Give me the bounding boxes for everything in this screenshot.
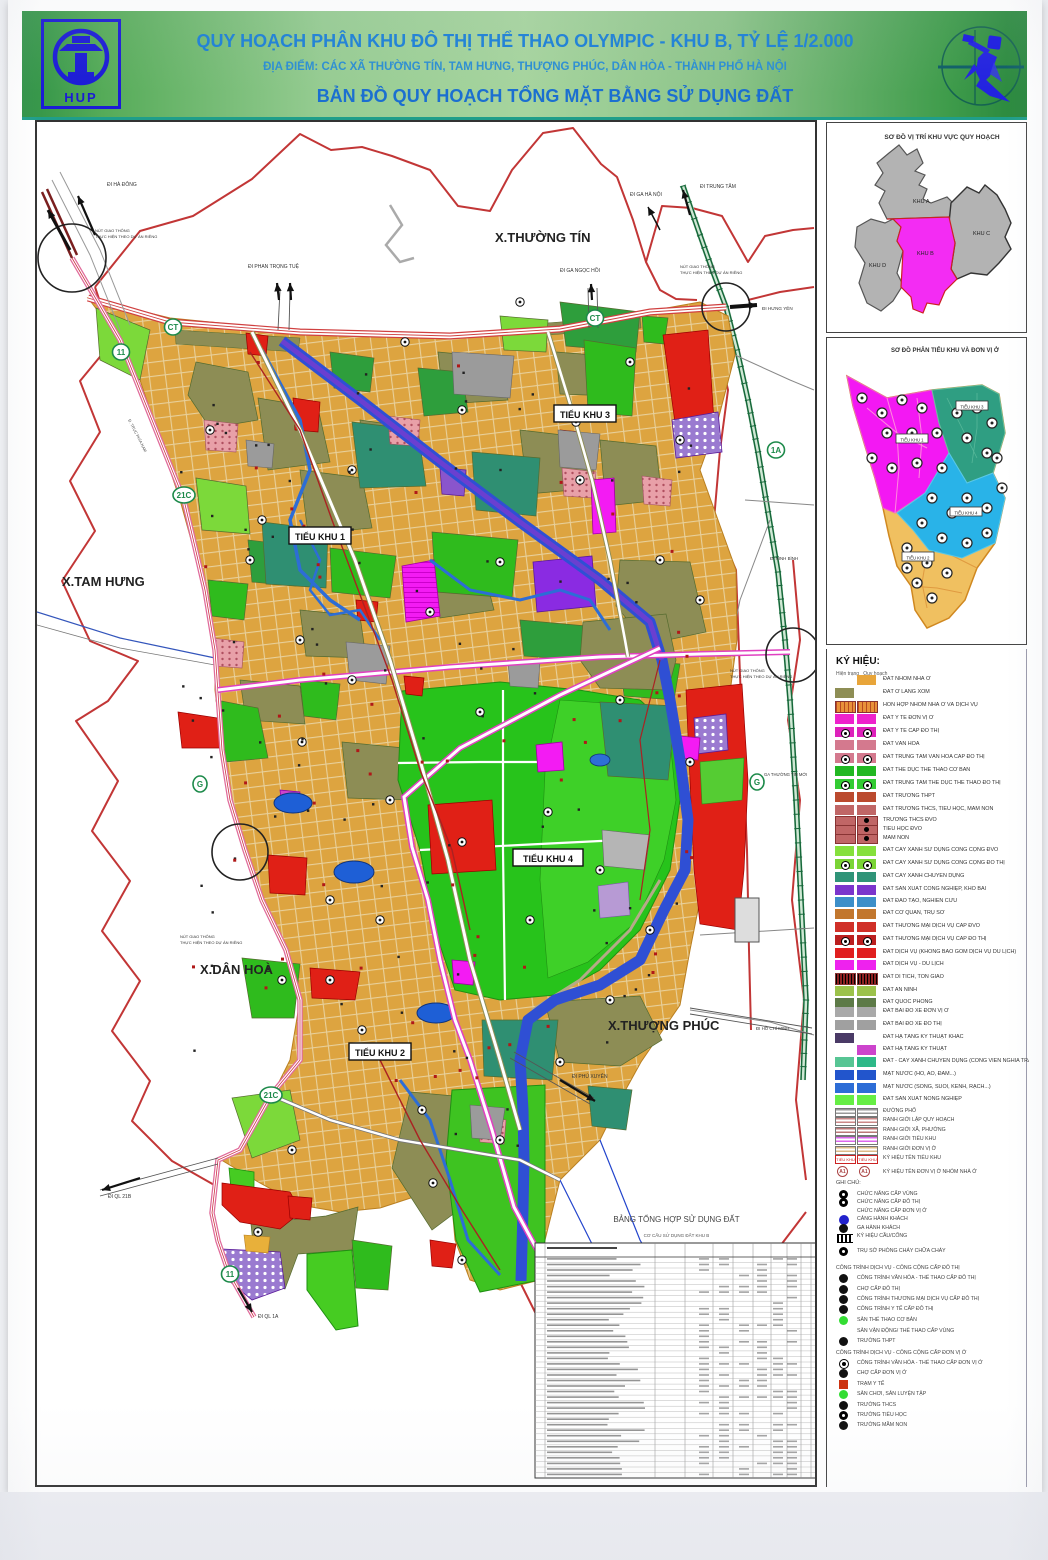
svg-text:G: G [197, 780, 203, 789]
svg-text:11: 11 [226, 1270, 235, 1279]
svg-text:G: G [754, 778, 760, 787]
svg-text:NÚT GIAO THÔNG: NÚT GIAO THÔNG [680, 264, 715, 269]
svg-text:KHU A: KHU A [913, 199, 930, 205]
svg-text:SƠ ĐỒ VỊ TRÍ KHU VỰC QUY HOẠCH: SƠ ĐỒ VỊ TRÍ KHU VỰC QUY HOẠCH [884, 131, 999, 141]
svg-text:TIỂU KHU 1: TIỂU KHU 1 [295, 531, 345, 542]
svg-text:ĐI QL 1A: ĐI QL 1A [258, 1314, 279, 1320]
svg-text:TIỂU KHU 3: TIỂU KHU 3 [960, 405, 984, 410]
svg-text:1A: 1A [771, 446, 781, 455]
svg-text:ĐI TRUNG TÂM: ĐI TRUNG TÂM [700, 183, 736, 190]
svg-text:ĐI PHÚ XUYÊN: ĐI PHÚ XUYÊN [572, 1072, 608, 1080]
svg-text:THỰC HIỆN THEO DỰ ÁN RIÊNG: THỰC HIỆN THEO DỰ ÁN RIÊNG [680, 270, 742, 275]
svg-text:ĐI HỒ CHÍ MINH: ĐI HỒ CHÍ MINH [756, 1026, 789, 1031]
svg-text:NÚT GIAO THÔNG: NÚT GIAO THÔNG [730, 668, 765, 673]
svg-text:GA THƯỜNG TÍN MỚI: GA THƯỜNG TÍN MỚI [764, 772, 807, 777]
svg-text:TIỂU KHU 2: TIỂU KHU 2 [355, 1047, 405, 1058]
svg-text:THỰC HIỆN THEO DỰ ÁN RIÊNG: THỰC HIỆN THEO DỰ ÁN RIÊNG [730, 674, 792, 679]
svg-text:KHU B: KHU B [917, 251, 934, 257]
svg-text:ĐI GA NGỌC HỒI: ĐI GA NGỌC HỒI [560, 267, 600, 274]
svg-text:TIỂU KHU 2: TIỂU KHU 2 [906, 556, 930, 561]
svg-text:NÚT GIAO THÔNG: NÚT GIAO THÔNG [180, 934, 215, 939]
svg-text:CT: CT [590, 314, 601, 323]
svg-text:KHU D: KHU D [869, 263, 886, 269]
svg-text:THỰC HIỆN THEO DỰ ÁN RIÊNG: THỰC HIỆN THEO DỰ ÁN RIÊNG [95, 234, 157, 239]
svg-text:TIỂU KHU 4: TIỂU KHU 4 [523, 853, 573, 864]
svg-text:21C: 21C [177, 491, 192, 500]
svg-text:ĐI HÀ ĐÔNG: ĐI HÀ ĐÔNG [107, 181, 137, 188]
svg-text:ĐI PHAN TRỌNG TUỆ: ĐI PHAN TRỌNG TUỆ [248, 262, 300, 270]
svg-text:11: 11 [117, 348, 126, 357]
svg-text:HUP: HUP [64, 90, 97, 105]
svg-text:ĐI HƯNG YÊN: ĐI HƯNG YÊN [762, 304, 793, 311]
svg-text:X.DÂN HOÀ: X.DÂN HOÀ [200, 962, 274, 977]
svg-text:21C: 21C [264, 1091, 279, 1100]
svg-text:ĐI GA HÀ NỘI: ĐI GA HÀ NỘI [630, 191, 662, 198]
svg-text:TIỂU KHU 1: TIỂU KHU 1 [900, 438, 924, 443]
svg-text:X.TAM HƯNG: X.TAM HƯNG [62, 574, 145, 589]
svg-text:ĐI QL 21B: ĐI QL 21B [108, 1194, 132, 1200]
svg-text:ĐI NINH BÌNH: ĐI NINH BÌNH [770, 556, 798, 561]
svg-text:SƠ ĐỒ PHÂN TIỂU KHU VÀ ĐƠN VỊ: SƠ ĐỒ PHÂN TIỂU KHU VÀ ĐƠN VỊ Ở [891, 347, 1000, 354]
svg-text:NÚT GIAO THÔNG: NÚT GIAO THÔNG [95, 228, 130, 233]
svg-text:X.THƯỜNG TÍN: X.THƯỜNG TÍN [495, 230, 591, 245]
svg-text:THỰC HIỆN THEO DỰ ÁN RIÊNG: THỰC HIỆN THEO DỰ ÁN RIÊNG [180, 940, 242, 945]
svg-text:CƠ CẤU SỬ DỤNG ĐẤT KHU B: CƠ CẤU SỬ DỤNG ĐẤT KHU B [644, 1232, 710, 1238]
svg-text:X.THƯỢNG PHÚC: X.THƯỢNG PHÚC [608, 1018, 720, 1033]
svg-text:TIỂU KHU 4: TIỂU KHU 4 [954, 511, 978, 516]
svg-text:TIỂU KHU 3: TIỂU KHU 3 [560, 409, 610, 420]
svg-text:Đ. TRỤC PHÍA NAM: Đ. TRỤC PHÍA NAM [127, 418, 148, 453]
svg-text:CT: CT [168, 323, 179, 332]
svg-text:KHU C: KHU C [973, 231, 990, 237]
svg-text:BẢNG TỔNG HỢP SỬ DỤNG ĐẤT: BẢNG TỔNG HỢP SỬ DỤNG ĐẤT [613, 1214, 739, 1224]
